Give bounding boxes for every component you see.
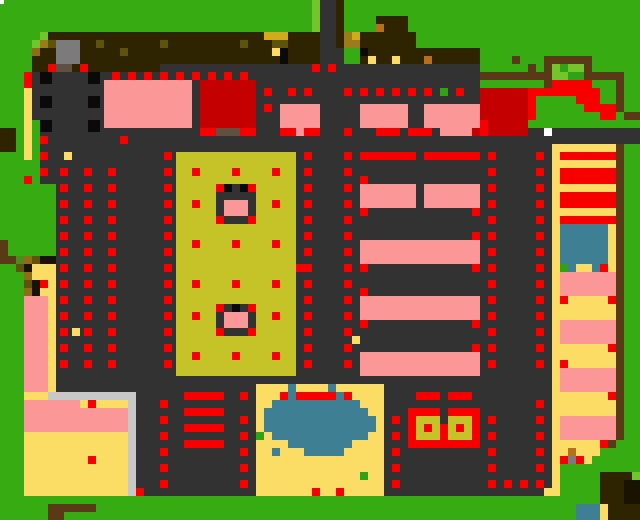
red-dot-marker — [192, 200, 200, 208]
red-dot-marker — [536, 200, 544, 208]
red-dot-marker — [232, 168, 240, 176]
red-dot-marker — [560, 360, 568, 368]
red-dot-marker — [304, 152, 312, 160]
map-rect — [624, 112, 640, 120]
red-dot-marker — [84, 360, 92, 368]
red-dot-marker — [108, 296, 116, 304]
red-dot-marker — [472, 320, 480, 328]
red-dot-marker — [60, 360, 68, 368]
map-rect — [552, 144, 560, 496]
red-dot-marker — [84, 216, 92, 224]
stripe-2 — [184, 408, 224, 416]
red-dot-marker — [536, 416, 544, 424]
red-dot-marker — [192, 280, 200, 288]
red-dot-marker — [472, 232, 480, 240]
map-rect — [88, 72, 100, 84]
map-rect — [160, 40, 168, 48]
map-rect — [480, 120, 488, 136]
map-rect — [200, 128, 216, 136]
red-dot-marker — [272, 200, 280, 208]
red-dot-marker — [60, 216, 68, 224]
map-rect — [24, 392, 48, 400]
red-dot-marker — [108, 168, 116, 176]
red-dot-marker — [488, 432, 496, 440]
map-rect — [272, 448, 280, 456]
red-dot-marker — [536, 480, 544, 488]
stripe-4 — [184, 440, 224, 448]
red-dot-marker — [60, 344, 68, 352]
map-rect — [160, 80, 192, 128]
red-dot-marker — [344, 280, 352, 288]
red-dot-marker — [164, 184, 172, 192]
red-dot-marker — [108, 312, 116, 320]
game-map — [0, 0, 640, 520]
map-rect — [16, 256, 24, 264]
map-rect — [576, 96, 600, 104]
map-rect — [224, 184, 232, 192]
map-rect — [256, 432, 264, 440]
map-rect — [560, 152, 616, 160]
red-dot-marker — [164, 248, 172, 256]
red-dot-marker — [536, 184, 544, 192]
red-dot-marker — [536, 328, 544, 336]
map-rect — [272, 48, 280, 56]
red-dot-marker — [344, 328, 352, 336]
red-dot-marker — [240, 464, 248, 472]
map-rect — [24, 272, 32, 280]
red-dot-marker — [424, 88, 432, 96]
pond — [272, 400, 360, 408]
red-dot-marker — [272, 352, 280, 360]
red-dot-marker — [304, 360, 312, 368]
red-dot-marker — [108, 232, 116, 240]
red-dot-marker — [164, 168, 172, 176]
map-rect — [360, 152, 416, 160]
map-rect — [240, 184, 248, 192]
map-rect — [560, 168, 616, 184]
map-rect — [128, 400, 136, 496]
red-dot-marker — [224, 72, 232, 80]
map-rect — [216, 328, 224, 336]
map-rect — [440, 128, 472, 136]
map-rect — [120, 48, 128, 56]
map-rect — [32, 256, 40, 264]
red-dot-marker — [488, 280, 496, 288]
red-dot-marker — [536, 464, 544, 472]
map-rect — [40, 280, 48, 288]
red-dot-marker — [108, 264, 116, 272]
red-dot-marker — [272, 280, 280, 288]
red-dot-marker — [536, 296, 544, 304]
brown-path — [616, 72, 624, 112]
map-rect — [232, 304, 240, 312]
map-rect — [96, 40, 104, 48]
red-dot-marker — [164, 264, 172, 272]
map-rect — [416, 352, 480, 376]
map-rect — [592, 456, 616, 464]
map-rect — [288, 440, 352, 448]
map-rect — [280, 48, 288, 64]
map-rect — [224, 200, 248, 216]
red-dot-marker — [60, 280, 68, 288]
map-rect — [624, 480, 640, 504]
red-dot-marker — [176, 72, 184, 80]
map-rect — [288, 392, 296, 400]
red-dot-marker — [488, 480, 496, 488]
map-rect — [24, 432, 128, 496]
map-rect — [32, 32, 40, 40]
red-dot-marker — [536, 280, 544, 288]
red-dot-marker — [108, 328, 116, 336]
red-dot-marker — [264, 88, 272, 96]
red-dot-marker — [304, 200, 312, 208]
map-rect — [560, 416, 616, 440]
red-dot-marker — [164, 296, 172, 304]
stone-block — [56, 40, 80, 64]
map-rect — [40, 72, 52, 84]
red-dot-marker — [240, 432, 248, 440]
red-dot-marker — [164, 232, 172, 240]
map-rect — [40, 32, 48, 40]
red-dot-marker — [60, 264, 68, 272]
bottom-grass-band — [0, 496, 640, 520]
red-dot-marker — [304, 312, 312, 320]
map-rect — [280, 392, 288, 400]
red-dot-marker — [112, 72, 120, 80]
red-dot-marker — [60, 312, 68, 320]
red-dot-marker — [120, 136, 128, 144]
map-rect — [24, 264, 32, 272]
red-dot-marker — [536, 248, 544, 256]
red-dot-marker — [108, 216, 116, 224]
map-rect — [416, 240, 480, 264]
map-rect — [24, 288, 32, 296]
red-dot-marker — [360, 176, 368, 184]
red-dot-marker — [344, 248, 352, 256]
map-rect — [80, 400, 88, 408]
red-dot-marker — [536, 312, 544, 320]
map-rect — [568, 448, 576, 456]
red-dot-marker — [488, 328, 496, 336]
map-rect — [560, 264, 568, 272]
map-rect — [528, 96, 536, 120]
red-dot-marker — [304, 88, 312, 96]
red-dot-marker — [536, 152, 544, 160]
red-dot-marker — [560, 296, 568, 304]
map-rect — [32, 264, 48, 272]
red-dot-marker — [304, 168, 312, 176]
red-dot-marker — [344, 152, 352, 160]
red-dot-marker — [288, 88, 296, 96]
map-rect — [352, 336, 360, 344]
map-rect — [416, 296, 480, 320]
red-dot-marker — [192, 72, 200, 80]
red-dot-marker — [84, 200, 92, 208]
red-dot-marker — [128, 72, 136, 80]
map-rect — [592, 72, 616, 80]
red-dot-marker — [60, 232, 68, 240]
red-dot-marker — [472, 208, 480, 216]
map-rect — [224, 312, 248, 328]
red-dot-marker — [84, 248, 92, 256]
red-dot-marker — [304, 184, 312, 192]
red-dot-marker — [520, 480, 528, 488]
map-rect — [48, 40, 56, 48]
map-rect — [48, 512, 64, 520]
map-rect — [568, 456, 576, 464]
red-dot-marker — [40, 136, 48, 144]
red-path-1 — [552, 80, 592, 88]
red-dot-marker — [488, 416, 496, 424]
map-rect — [416, 392, 440, 400]
building-pink-large — [104, 80, 160, 128]
red-dot-marker — [108, 344, 116, 352]
map-rect — [392, 56, 400, 64]
map-rect — [360, 48, 368, 56]
red-dot-marker — [108, 200, 116, 208]
red-dot-marker — [392, 432, 400, 440]
red-dot-marker — [232, 352, 240, 360]
red-dot-marker — [488, 152, 496, 160]
building-dark-red — [200, 80, 256, 128]
red-dot-marker — [304, 232, 312, 240]
map-rect — [48, 280, 56, 392]
map-rect — [32, 48, 40, 56]
bl-building-border — [48, 392, 136, 400]
map-rect — [560, 320, 616, 344]
top-dirt-band-mid — [160, 32, 320, 64]
map-rect — [280, 128, 296, 136]
map-rect — [560, 216, 616, 224]
map-rect — [312, 488, 320, 496]
map-rect — [24, 256, 32, 264]
map-rect — [544, 488, 552, 496]
map-rect — [600, 264, 608, 272]
red-dot-marker — [160, 400, 168, 408]
red-dot-marker — [108, 280, 116, 288]
red-dot-marker — [536, 360, 544, 368]
map-rect — [616, 128, 640, 144]
red-dot-marker — [60, 296, 68, 304]
red-dot-marker — [536, 400, 544, 408]
red-dot-marker — [456, 88, 464, 96]
map-rect — [576, 456, 584, 464]
map-rect — [592, 264, 600, 272]
red-dot-marker — [488, 232, 496, 240]
map-rect — [88, 400, 96, 408]
red-dot-marker — [164, 328, 172, 336]
red-dot-marker — [60, 184, 68, 192]
red-dot-marker — [60, 248, 68, 256]
map-rect — [216, 216, 224, 224]
red-dot-marker — [164, 312, 172, 320]
map-rect — [320, 392, 336, 400]
tile-marker — [64, 152, 72, 160]
red-dot-marker — [264, 104, 272, 112]
red-dot-marker — [84, 344, 92, 352]
brown-block-left — [0, 128, 16, 152]
red-dot-marker — [192, 240, 200, 248]
red-dot-marker — [80, 64, 88, 72]
red-dot-marker — [536, 232, 544, 240]
red-dot-marker — [108, 184, 116, 192]
map-rect — [88, 120, 100, 132]
map-rect — [440, 88, 448, 96]
map-rect — [40, 40, 48, 48]
red-dot-marker — [48, 64, 56, 72]
map-rect — [32, 288, 40, 296]
apartment-row-2 — [360, 240, 416, 264]
map-rect — [424, 104, 480, 128]
red-dot-marker — [328, 64, 336, 72]
red-dot-marker — [192, 312, 200, 320]
map-rect — [264, 408, 368, 416]
red-dot-marker — [488, 248, 496, 256]
red-dot-marker — [240, 392, 248, 400]
map-rect — [376, 128, 400, 136]
map-rect — [40, 288, 48, 296]
red-dot-marker — [312, 64, 320, 72]
map-rect — [304, 128, 320, 136]
map-rect — [576, 504, 600, 520]
pink-strip — [24, 296, 48, 392]
map-rect — [288, 384, 296, 392]
map-rect — [608, 440, 616, 448]
red-dot-marker — [160, 448, 168, 456]
red-dot-marker — [608, 344, 616, 352]
red-dot-marker — [360, 264, 368, 272]
map-rect — [40, 120, 52, 132]
map-rect — [328, 384, 336, 392]
map-rect — [600, 504, 608, 520]
red-dot-marker — [360, 288, 368, 296]
red-dot-marker — [160, 416, 168, 424]
red-dot-marker — [304, 264, 312, 272]
red-dot-marker — [536, 168, 544, 176]
red-dot-marker — [392, 480, 400, 488]
red-dot-marker — [160, 480, 168, 488]
map-rect — [88, 456, 96, 464]
red-dot-marker — [608, 296, 616, 304]
red-dot-marker — [164, 360, 172, 368]
map-rect — [472, 128, 480, 136]
red-dot-marker — [160, 464, 168, 472]
map-rect — [360, 472, 368, 480]
red-dot-marker — [536, 344, 544, 352]
red-dot-marker — [344, 296, 352, 304]
red-dot-marker — [232, 280, 240, 288]
map-rect — [560, 464, 616, 472]
map-rect — [440, 408, 448, 424]
map-rect — [0, 256, 16, 264]
map-rect — [48, 264, 56, 280]
map-rect — [24, 176, 32, 184]
red-dot-marker — [108, 360, 116, 368]
red-dot-marker — [232, 240, 240, 248]
tile-marker — [72, 328, 80, 336]
red-dot-marker — [488, 296, 496, 304]
rooftop-pool — [560, 224, 608, 264]
red-dot-marker — [240, 72, 248, 80]
red-dot-marker — [164, 216, 172, 224]
red-dot-marker — [472, 264, 480, 272]
red-dot-marker — [344, 312, 352, 320]
red-dot-marker — [360, 208, 368, 216]
red-dot-marker — [408, 88, 416, 96]
red-dot-marker — [488, 448, 496, 456]
map-rect — [336, 392, 344, 400]
map-rect — [584, 104, 616, 112]
map-rect — [32, 272, 48, 280]
map-rect — [264, 32, 288, 40]
map-rect — [560, 472, 600, 496]
red-dot-marker — [160, 432, 168, 440]
red-dot-marker — [240, 448, 248, 456]
map-rect — [600, 440, 608, 448]
apartment-row-3 — [360, 296, 416, 320]
map-rect — [296, 392, 320, 400]
stripe-1 — [184, 392, 224, 400]
red-dot-marker — [40, 168, 48, 176]
red-dot-marker — [304, 216, 312, 224]
red-dot-marker — [84, 312, 92, 320]
map-rect — [24, 280, 32, 288]
red-dot-marker — [344, 344, 352, 352]
map-rect — [96, 400, 128, 408]
map-rect — [240, 128, 256, 136]
map-rect — [560, 368, 616, 392]
red-dot-marker — [304, 296, 312, 304]
map-rect — [600, 112, 616, 120]
red-dot-marker — [536, 216, 544, 224]
red-dot-marker — [536, 432, 544, 440]
red-dot-marker — [60, 168, 68, 176]
red-dot-marker — [240, 480, 248, 488]
red-path-2 — [528, 88, 600, 96]
red-dot-marker — [272, 312, 280, 320]
red-dot-marker — [488, 264, 496, 272]
map-rect — [264, 424, 376, 432]
map-rect — [344, 392, 352, 400]
red-dot-marker — [360, 320, 368, 328]
red-dot-marker — [84, 328, 92, 336]
map-rect — [40, 120, 160, 184]
red-dot-marker — [164, 280, 172, 288]
red-dot-marker — [272, 168, 280, 176]
red-dot-marker — [344, 360, 352, 368]
red-dot-marker — [304, 248, 312, 256]
red-dot-marker — [344, 184, 352, 192]
red-dot-marker — [60, 328, 68, 336]
map-rect — [264, 416, 376, 424]
red-dot-marker — [344, 88, 352, 96]
red-dot-marker — [536, 448, 544, 456]
red-dot-marker — [344, 200, 352, 208]
red-dot-marker — [392, 448, 400, 456]
red-dot-marker — [60, 200, 68, 208]
map-rect — [248, 328, 256, 336]
map-rect — [248, 184, 256, 192]
red-dot-marker — [164, 152, 172, 160]
map-rect — [376, 24, 384, 32]
map-rect — [216, 304, 224, 312]
red-dot-marker — [488, 464, 496, 472]
map-rect — [304, 448, 344, 456]
red-dot-marker — [376, 88, 384, 96]
yellow-strip — [24, 88, 32, 160]
red-dot-marker — [304, 328, 312, 336]
red-dot-marker — [304, 280, 312, 288]
